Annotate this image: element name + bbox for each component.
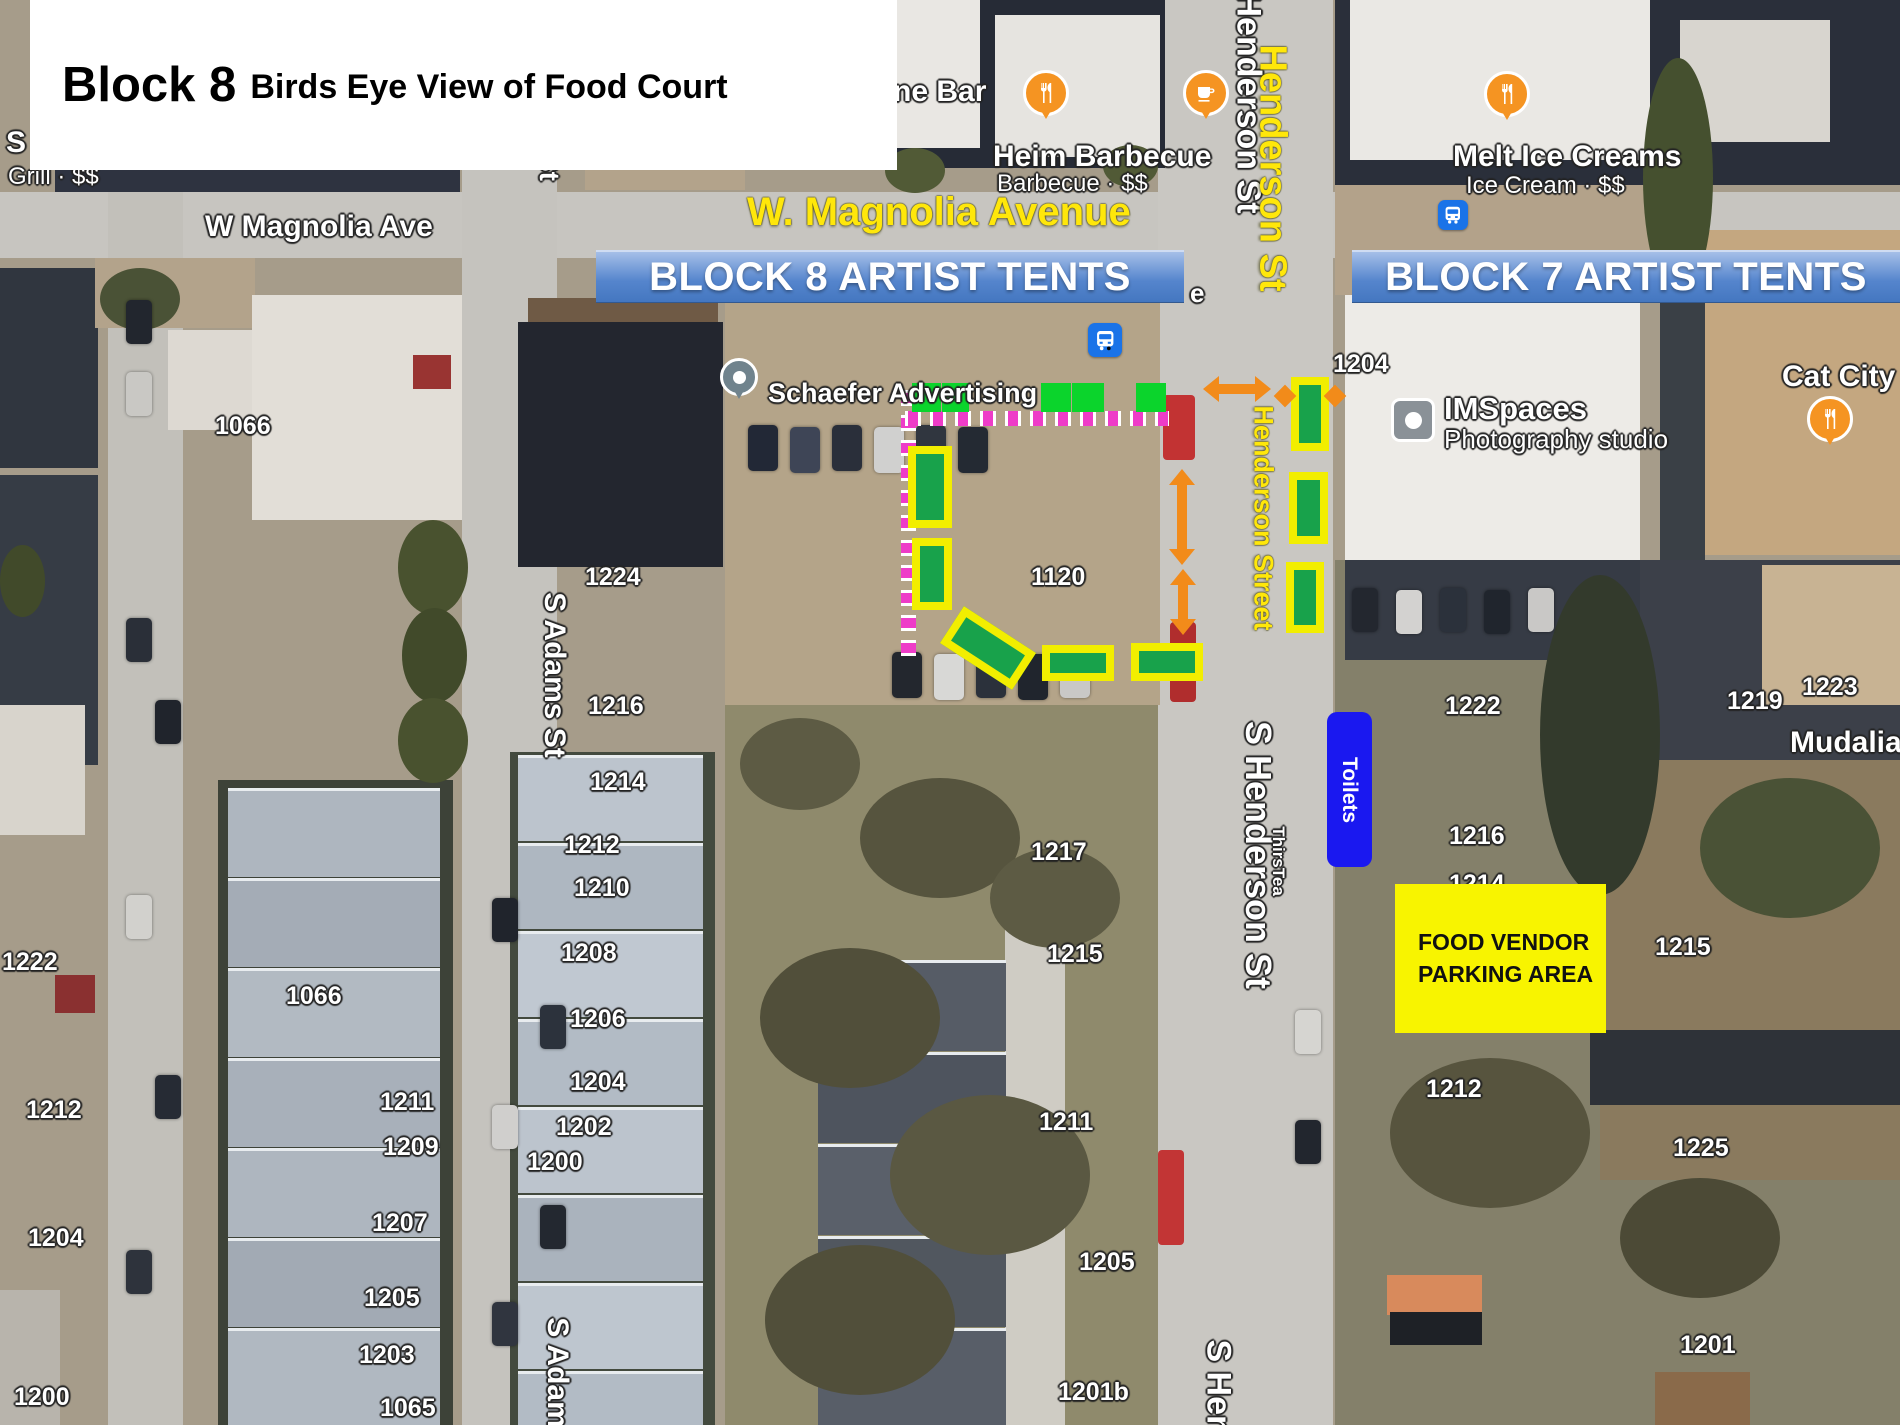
street-label-magnolia: W Magnolia Ave — [205, 210, 433, 244]
street-label-adams: S Adams St — [537, 592, 571, 758]
artist-tent — [1291, 377, 1329, 451]
banner-block8-label: BLOCK 8 ARTIST TENTS — [649, 255, 1131, 300]
poi-label-grill-name: S — [6, 126, 26, 160]
address-label: 1212 — [26, 1096, 82, 1125]
address-label: 1205 — [1079, 1248, 1135, 1277]
address-label: 1203 — [359, 1341, 415, 1370]
artist-tent — [908, 446, 952, 528]
page-subtitle: Birds Eye View of Food Court — [250, 68, 727, 107]
poi-label-cat-city: Cat City G — [1782, 360, 1900, 394]
toilets-zone: Toilets — [1327, 712, 1372, 867]
pin-dot-icon — [733, 371, 746, 384]
poi-label-melt-name: Melt Ice Creams — [1453, 140, 1681, 174]
photo-studio-icon — [1391, 398, 1435, 442]
food-vendor-label-line1: FOOD VENDOR — [1418, 927, 1606, 958]
restaurant-pin — [1023, 70, 1069, 116]
title-box: Block 8 Birds Eye View of Food Court — [30, 0, 897, 170]
address-label: 1211 — [1039, 1108, 1093, 1137]
bus-stop-icon — [1438, 200, 1468, 230]
place-pin — [720, 358, 758, 396]
poi-label-imspaces-sub: Photography studio — [1444, 424, 1668, 455]
map-canvas: W Magnolia Ave St S Adams St S Adams St … — [0, 0, 1900, 1425]
address-label: 1222 — [1445, 692, 1501, 721]
poi-label-imspaces-name: IMSpaces — [1444, 391, 1587, 427]
address-label: 1216 — [588, 692, 644, 721]
street-flow-arrow — [1177, 484, 1187, 550]
coffee-pin — [1183, 70, 1229, 116]
address-label: 1212 — [1426, 1075, 1482, 1104]
address-label: 1210 — [574, 874, 630, 903]
address-label: 1204 — [28, 1224, 84, 1253]
address-label: 1217 — [1031, 838, 1087, 867]
fork-knife-icon — [1034, 81, 1058, 105]
address-label: 1206 — [570, 1005, 626, 1034]
address-label: 1207 — [372, 1209, 428, 1238]
address-label: 1201 — [1680, 1331, 1736, 1360]
address-label: 1204 — [1333, 350, 1389, 379]
restaurant-pin — [1484, 71, 1530, 117]
poi-label-thirstea: ThirsTea — [1268, 826, 1288, 896]
street-label-ave-fragment: e — [1190, 278, 1204, 309]
poi-label-melt-sub: Ice Cream · $$ — [1466, 172, 1625, 200]
address-label: 1201b — [1058, 1378, 1129, 1407]
poi-label-bar: ne Bar — [893, 75, 986, 109]
poi-label-schaefer: Schaefer Advertising — [768, 378, 1037, 409]
road-henderson — [1158, 0, 1333, 1425]
address-label: 1212 — [564, 831, 620, 860]
coffee-cup-icon — [1194, 81, 1218, 105]
artist-tent — [1131, 643, 1203, 681]
address-label: 1223 — [1802, 673, 1858, 702]
address-label: 1202 — [556, 1113, 612, 1142]
address-label: 1224 — [585, 563, 641, 592]
toilets-label: Toilets — [1338, 756, 1362, 822]
address-label: 1215 — [1047, 940, 1103, 969]
restaurant-pin — [1807, 396, 1853, 442]
banner-block7-artist-tents: BLOCK 7 ARTIST TENTS — [1352, 250, 1900, 303]
address-label: 1065 — [380, 1394, 436, 1423]
overlay-henderson-st: Henderson St — [1251, 44, 1294, 291]
address-label: 1208 — [561, 939, 617, 968]
tent-marker — [1041, 383, 1071, 412]
address-label: 1216 — [1449, 822, 1505, 851]
fork-knife-icon — [1495, 82, 1519, 106]
bus-icon — [1442, 204, 1464, 226]
poi-label-mudaliar: Mudalia — [1790, 726, 1900, 760]
street-flow-arrow — [1178, 584, 1188, 620]
address-label: 1209 — [383, 1133, 439, 1162]
crossing-arrow — [1218, 384, 1256, 394]
page-title: Block 8 — [62, 57, 236, 113]
overlay-magnolia-avenue: W. Magnolia Avenue — [747, 190, 1131, 235]
address-label: 1222 — [2, 948, 58, 977]
route-dotted-line-horizontal — [905, 411, 1169, 426]
address-label: 1200 — [527, 1148, 583, 1177]
food-vendor-parking-zone: FOOD VENDOR PARKING AREA — [1395, 884, 1606, 1033]
red-truck — [1163, 395, 1195, 460]
address-label: 1211 — [380, 1088, 434, 1117]
fork-knife-icon — [1818, 407, 1842, 431]
food-vendor-label-line2: PARKING AREA — [1418, 959, 1606, 990]
tent-marker — [1072, 383, 1104, 412]
artist-tent — [1042, 645, 1114, 681]
red-truck — [1158, 1150, 1184, 1245]
address-label: 1204 — [570, 1068, 626, 1097]
banner-block7-label: BLOCK 7 ARTIST TENTS — [1385, 255, 1867, 300]
artist-tent — [912, 538, 952, 610]
address-label: 1225 — [1673, 1134, 1729, 1163]
overlay-henderson-street: Henderson Street — [1248, 405, 1279, 630]
artist-tent — [1286, 562, 1324, 633]
bus-icon — [1093, 328, 1117, 352]
street-label-adams-bottom: S Adams St — [540, 1317, 574, 1425]
bus-stop-icon — [1088, 323, 1122, 357]
address-label: 1214 — [590, 768, 646, 797]
street-label-s-henderson-bottom: S Hend — [1199, 1339, 1238, 1425]
banner-block8-artist-tents: BLOCK 8 ARTIST TENTS — [596, 250, 1184, 303]
address-label: 1215 — [1655, 933, 1711, 962]
artist-tent — [1289, 472, 1328, 544]
address-label: 1066 — [215, 412, 271, 441]
poi-label-heim-name: Heim Barbecue — [993, 140, 1211, 174]
address-label: 1066 — [286, 982, 342, 1011]
address-label: 1200 — [14, 1383, 70, 1412]
address-label: 1219 — [1727, 687, 1783, 716]
address-label: 1120 — [1031, 563, 1085, 592]
tent-marker — [1136, 383, 1166, 412]
address-label: 1205 — [364, 1284, 420, 1313]
